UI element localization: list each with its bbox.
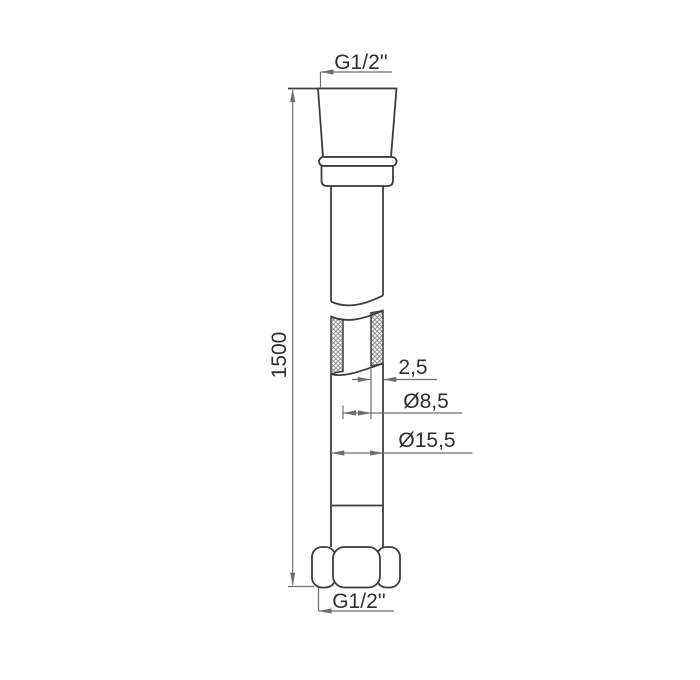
arrow-up [290,89,295,102]
braid-wall-right [371,311,383,366]
arrow-left [343,410,356,415]
bead-ring [319,157,397,166]
hex-nut [312,547,400,588]
braid-section [331,311,383,376]
arrow-right [358,410,371,415]
thread-label-top: G1/2'' [334,51,388,74]
upper-break-line [331,296,383,306]
length-label: 1500 [268,332,291,379]
collar [322,166,394,186]
braid-wall-left [331,317,343,375]
thread-label-bottom: G1/2'' [332,590,386,613]
technical-drawing-canvas: G1/2'' 1500 2,5 Ø8,5 Ø15,5 G1/2'' [0,0,700,680]
inner-diameter-label: Ø8,5 [403,390,449,413]
arrow-down [290,573,295,586]
dim-length-1500 [288,89,314,587]
outer-diameter-label: Ø15,5 [398,429,455,452]
arrow-right [370,450,383,455]
arrow-left [321,69,334,74]
shower-hose-drawing: G1/2'' 1500 2,5 Ø8,5 Ø15,5 G1/2'' [0,0,700,680]
hex-nut-left-facet [312,547,336,588]
hose-body [288,89,400,588]
arrow-left [331,450,344,455]
arrow-left [383,377,396,382]
hex-nut-center-facet [333,547,380,588]
conical-fitting [318,89,397,158]
arrow-left [319,608,332,613]
arrow-right [358,377,371,382]
wall-thickness-label: 2,5 [398,356,427,379]
